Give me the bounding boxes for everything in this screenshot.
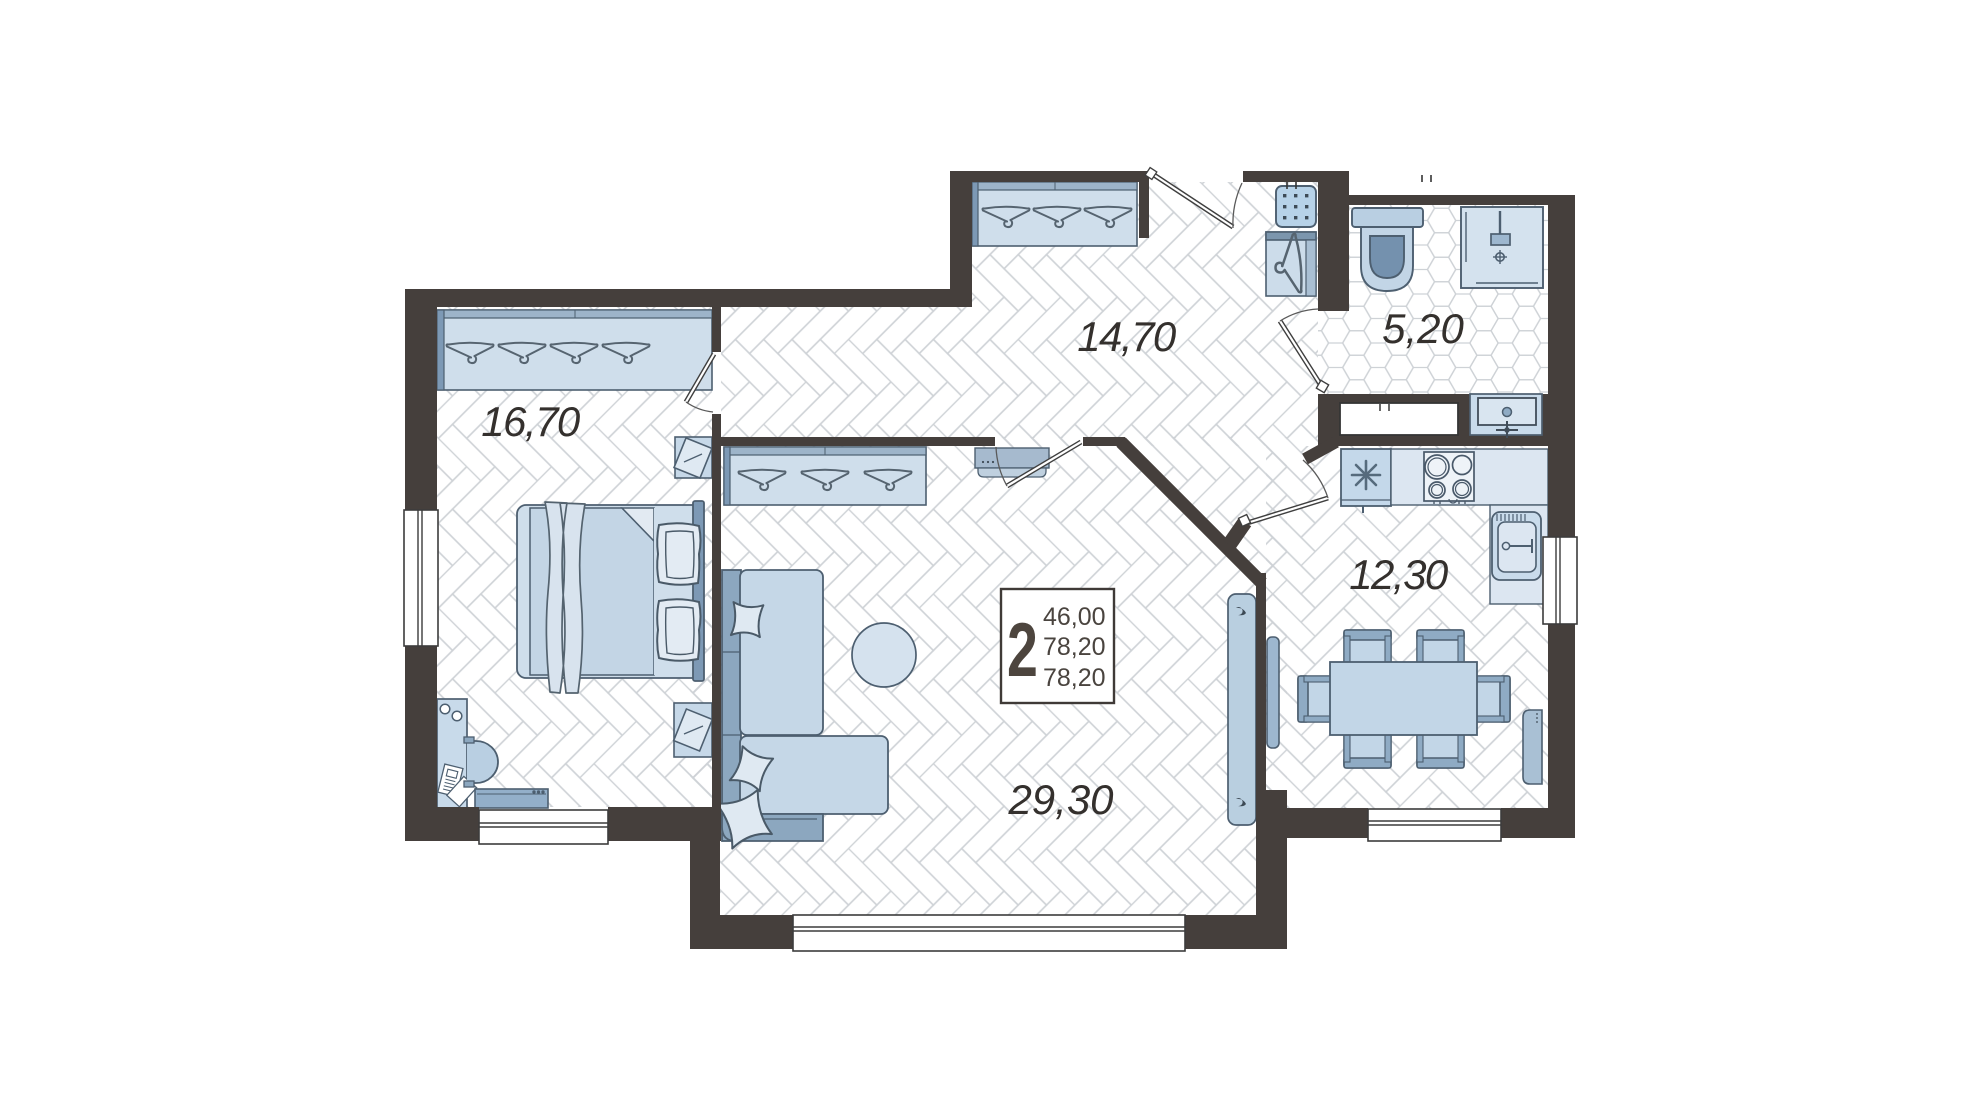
svg-text:46,00: 46,00 [1043,603,1106,631]
svg-text:5,20: 5,20 [1382,305,1464,352]
svg-text:16,70: 16,70 [481,398,581,445]
svg-text:12,30: 12,30 [1349,551,1449,598]
svg-text:14,70: 14,70 [1077,313,1177,360]
svg-text:78,20: 78,20 [1043,664,1106,692]
svg-text:78,20: 78,20 [1043,633,1106,661]
svg-text:2: 2 [1007,609,1038,694]
svg-text:29,30: 29,30 [1007,776,1114,823]
